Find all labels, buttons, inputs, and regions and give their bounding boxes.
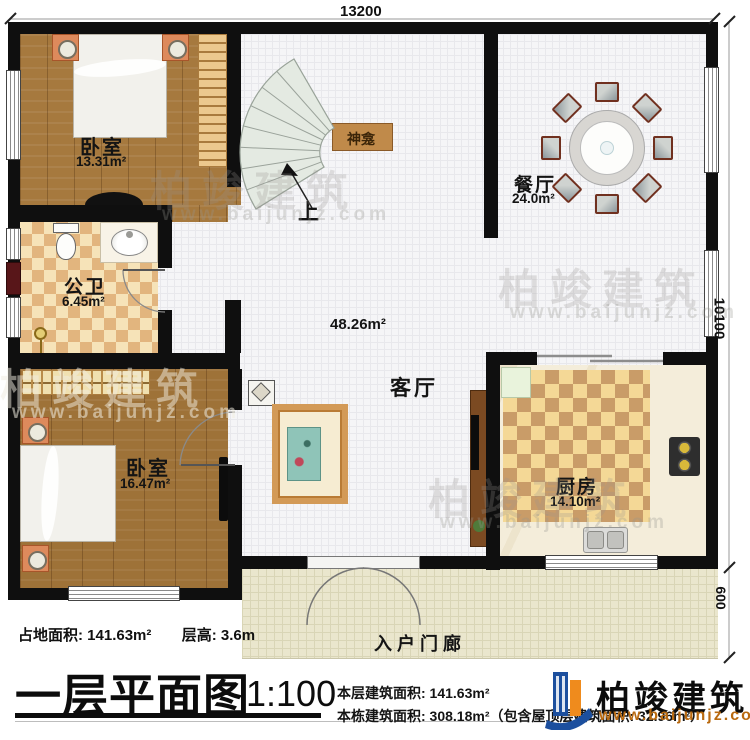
bedroom1-area: 13.31m²	[76, 154, 126, 169]
bedroom2-tv	[219, 457, 228, 521]
porch-floor	[242, 568, 718, 659]
wall-dining-divider	[484, 22, 498, 238]
living-name: 客厅	[390, 372, 438, 402]
dining-window	[704, 67, 719, 173]
dining-chair-w	[541, 136, 561, 160]
wall-top	[8, 22, 718, 34]
bedroom2-nightstand-top	[22, 417, 49, 444]
wall-kitchen-top-right	[663, 352, 718, 365]
bathroom-faucet	[126, 231, 133, 238]
plan-scale: 1:100	[246, 673, 336, 715]
bedroom1-nightstand-left	[52, 34, 79, 61]
dining-table-center	[600, 141, 614, 155]
wall-kitchen-left	[486, 352, 500, 570]
bedroom1-nightstand-right	[162, 34, 189, 61]
shower-fixture	[34, 327, 47, 340]
living-tv	[471, 415, 479, 470]
logo-website: www.baijunjz.com	[599, 707, 750, 725]
wall-bedroom2-right-lower	[228, 465, 242, 600]
toilet-bowl	[56, 233, 76, 260]
dim-right-height: 10100	[711, 290, 728, 348]
wall-bathroom-right-upper	[158, 205, 172, 268]
floor-area-label: 本层建筑面积: 141.63m²	[337, 683, 489, 703]
wall-vestibule-right	[225, 300, 241, 353]
bedroom1-door-floor	[172, 205, 228, 222]
dining-area: 24.0m²	[512, 191, 555, 206]
bedroom2-wardrobe	[22, 370, 150, 395]
stove	[669, 437, 700, 476]
bathroom-area: 6.45m²	[62, 294, 105, 309]
wall-bathroom-bottom	[8, 353, 240, 369]
kitchen-window	[545, 555, 658, 570]
bedroom1-bed-frame	[73, 34, 167, 138]
bedroom2-nightstand-bottom	[22, 545, 49, 572]
kitchen-area: 14.10m²	[550, 494, 600, 509]
wall-kitchen-top-left	[486, 352, 537, 365]
wall-bedroom1-right	[227, 22, 241, 187]
wall-bedroom2-right-upper	[228, 369, 242, 410]
wall-bottom-kitchen-right	[658, 556, 718, 569]
bedroom1-window	[6, 70, 21, 160]
bedroom2-window	[68, 586, 180, 601]
porch-name: 入户门廊	[374, 630, 466, 656]
bathroom-window-1	[6, 228, 21, 260]
dining-chair-e	[653, 136, 673, 160]
living-area: 48.26m²	[330, 316, 386, 333]
dining-chair-n	[595, 82, 619, 102]
kitchen-sink-basin-2	[607, 531, 624, 549]
wall-bottom-living-right	[420, 556, 545, 569]
bathroom-window-2	[6, 297, 21, 338]
shrine-name: 神龛	[347, 129, 375, 149]
kitchen-sink-basin-1	[587, 531, 604, 549]
bedroom2-area: 16.47m²	[120, 476, 170, 491]
wall-bathroom-top	[8, 205, 172, 222]
stairs-up-label: 上	[298, 196, 319, 226]
dim-right-porch: 600	[713, 577, 729, 619]
floor-plan-canvas: 卧室 13.31m² 公卫 6.45m² 卧室 16.47m² 神龛 餐厅 24…	[0, 0, 750, 740]
title-underline-thick	[15, 713, 321, 718]
dining-chair-s	[595, 194, 619, 214]
footer-area-line: 占地面积: 141.63m² 层高: 3.6m	[18, 624, 255, 645]
entry-door-leaves	[307, 556, 420, 569]
fridge	[501, 367, 531, 398]
floor-height-label: 层高: 3.6m	[182, 627, 255, 644]
toilet-tank	[53, 223, 79, 233]
bathroom-wall-panel	[6, 262, 21, 295]
site-area-label: 占地面积: 141.63m²	[18, 627, 151, 644]
bedroom2-bed-frame	[20, 445, 116, 542]
logo-building-icon	[543, 668, 595, 730]
living-coffee-table	[287, 427, 321, 481]
dim-top-width: 13200	[340, 3, 382, 20]
tv-cabinet-plant	[473, 520, 485, 532]
bedroom1-wardrobe	[198, 34, 227, 167]
